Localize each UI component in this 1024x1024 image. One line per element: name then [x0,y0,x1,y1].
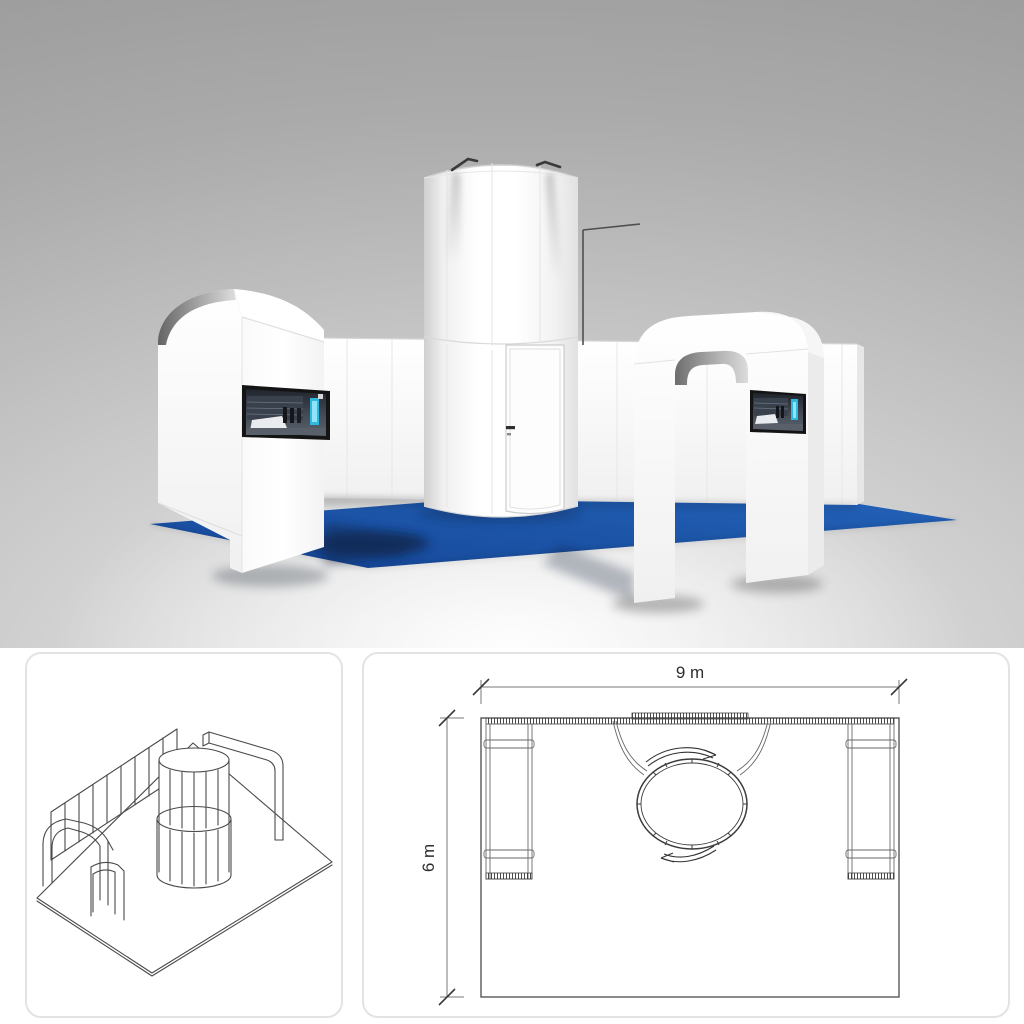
diagram-panels: 9 m 6 m [0,648,1024,1024]
floorplan-boundary [481,718,899,997]
center-tower [424,159,578,517]
isometric-panel [25,652,343,1018]
wireframe-back-wall [51,729,177,860]
plan-cylinder [637,759,747,849]
left-display [242,385,330,440]
right-display [750,390,806,434]
booth-3d-render [0,0,1024,648]
floorplan-panel: 9 m 6 m [362,652,1010,1018]
width-dimension-label: 9 m [676,663,704,682]
light-bracket [583,224,640,345]
plan-right-tunnel [846,724,896,879]
width-dimension: 9 m [473,663,907,704]
depth-dimension-label: 6 m [419,844,438,872]
depth-dimension: 6 m [419,710,464,1005]
floorplan-drawing: 9 m 6 m [419,663,907,1005]
page: 9 m 6 m [0,0,1024,1024]
wireframe-cylinder [157,748,231,888]
isometric-wireframe [37,729,332,976]
wireframe-left-arch [43,819,124,920]
plan-left-tunnel [484,724,534,879]
plan-back-wall [486,713,894,724]
tower-door [506,345,564,514]
